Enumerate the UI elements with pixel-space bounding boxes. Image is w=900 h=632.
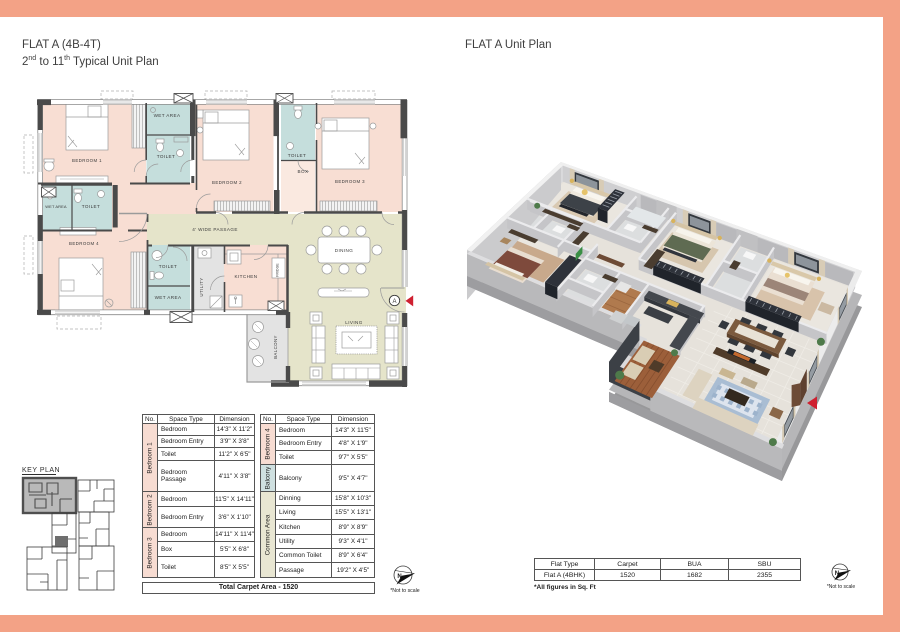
svg-text:4' WIDE PASSAGE: 4' WIDE PASSAGE xyxy=(192,227,238,232)
svg-text:TOILET: TOILET xyxy=(82,204,100,209)
svg-text:BALCONY: BALCONY xyxy=(273,335,278,359)
svg-text:*Not to scale: *Not to scale xyxy=(827,584,856,590)
svg-text:LIVING: LIVING xyxy=(345,320,362,325)
svg-text:BEDROOM 2: BEDROOM 2 xyxy=(212,180,242,185)
svg-text:BEDROOM 1: BEDROOM 1 xyxy=(72,158,102,163)
svg-text:TOILET: TOILET xyxy=(159,264,177,269)
svg-text:WET AREA: WET AREA xyxy=(154,113,181,118)
svg-text:N: N xyxy=(397,574,401,580)
svg-text:A: A xyxy=(392,299,396,305)
svg-text:WET AREA: WET AREA xyxy=(45,204,67,209)
svg-text:UTILITY: UTILITY xyxy=(199,277,204,296)
svg-text:FRIDGE: FRIDGE xyxy=(276,263,280,277)
svg-text:BEDROOM 3: BEDROOM 3 xyxy=(335,179,365,184)
svg-text:TOILET: TOILET xyxy=(288,153,306,158)
svg-text:*Not to scale: *Not to scale xyxy=(390,588,420,594)
svg-text:TOILET: TOILET xyxy=(157,154,175,159)
svg-text:N: N xyxy=(835,571,839,577)
svg-text:BEDROOM 4: BEDROOM 4 xyxy=(69,241,99,246)
svg-text:WET AREA: WET AREA xyxy=(155,295,182,300)
svg-text:BOX: BOX xyxy=(298,169,309,174)
svg-text:KITCHEN: KITCHEN xyxy=(235,274,258,279)
svg-text:DINING: DINING xyxy=(335,248,354,253)
svg-text:KEY PLAN: KEY PLAN xyxy=(22,467,60,474)
